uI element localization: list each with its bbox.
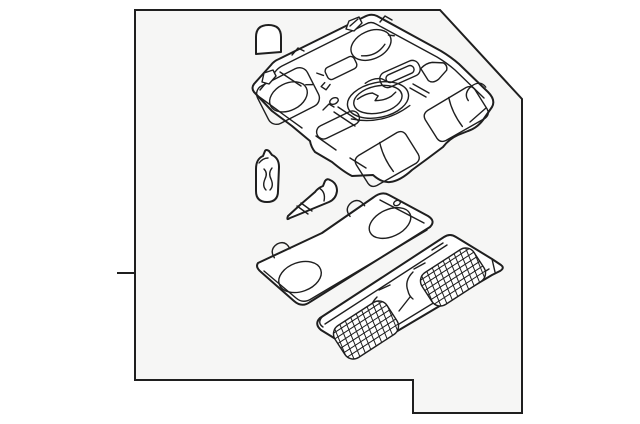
part-wedge-bulb <box>256 150 279 202</box>
parts-diagram <box>0 0 640 424</box>
part-dome-bulb-cover <box>256 25 281 54</box>
dome-cover-shape <box>256 25 281 54</box>
parts-diagram-canvas <box>0 0 640 424</box>
